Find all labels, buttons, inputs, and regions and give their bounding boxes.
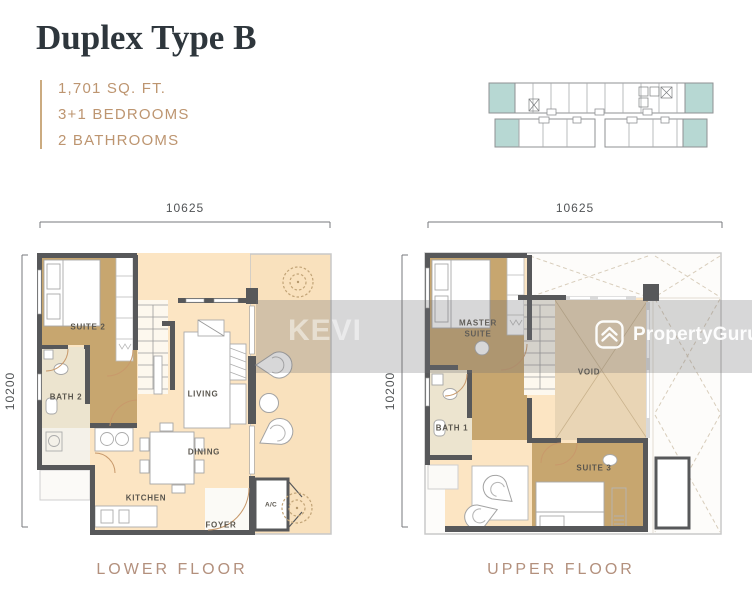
brand-watermark: PropertyGuru <box>594 319 752 350</box>
upper-floor-drawing <box>390 198 752 550</box>
watermark-band: KEVI PropertyGuru <box>256 300 752 373</box>
lower-width-dimension: 10625 <box>166 201 204 215</box>
lower-floor-drawing <box>0 198 345 550</box>
stat-area: 1,701 SQ. FT. <box>58 80 190 97</box>
room-label-dining: DINING <box>188 448 220 457</box>
room-label-kitchen: KITCHEN <box>126 494 166 503</box>
upper-balcony <box>428 465 458 489</box>
lower-floor-caption: LOWER FLOOR <box>96 561 247 579</box>
room-label-suite3: SUITE 3 <box>576 464 611 473</box>
brand-watermark-text: PropertyGuru <box>633 324 752 346</box>
service-compartment <box>656 458 689 528</box>
utility-floor <box>42 428 90 466</box>
upper-height-dimension: 10200 <box>383 372 397 410</box>
room-label-bath1: BATH 1 <box>436 424 469 433</box>
stairs <box>138 300 168 394</box>
wardrobe <box>116 255 133 361</box>
service-balcony <box>40 470 90 500</box>
upper-floor-plan: 10625 10200 MASTER SUITE BATH 1 VOID SUI… <box>390 198 752 550</box>
page-title: Duplex Type B <box>36 18 256 58</box>
lower-height-dimension: 10200 <box>3 372 17 410</box>
propertyguru-logo-icon <box>594 319 625 350</box>
terrace-table <box>260 394 279 413</box>
room-label-bath2: BATH 2 <box>50 393 83 402</box>
dining-table <box>140 423 204 493</box>
building-key-plan <box>487 79 715 151</box>
room-label-foyer: FOYER <box>205 521 236 530</box>
upper-floor-caption: UPPER FLOOR <box>487 561 635 579</box>
stat-bathrooms: 2 BATHROOMS <box>58 132 190 149</box>
unit-stats: 1,701 SQ. FT. 3+1 BEDROOMS 2 BATHROOMS <box>40 80 190 149</box>
agent-watermark: KEVI <box>288 314 362 348</box>
upper-width-dimension: 10625 <box>556 201 594 215</box>
floorplan-page: Duplex Type B 1,701 SQ. FT. 3+1 BEDROOMS… <box>0 0 752 600</box>
lower-floor-plan: 10625 10200 SUITE 2 BATH 2 LIVING DINING… <box>0 198 345 550</box>
bed <box>44 260 100 326</box>
stat-bedrooms: 3+1 BEDROOMS <box>58 106 190 123</box>
room-label-suite2: SUITE 2 <box>70 323 105 332</box>
room-label-living: LIVING <box>188 390 219 399</box>
room-label-ac: A/C <box>265 502 277 509</box>
